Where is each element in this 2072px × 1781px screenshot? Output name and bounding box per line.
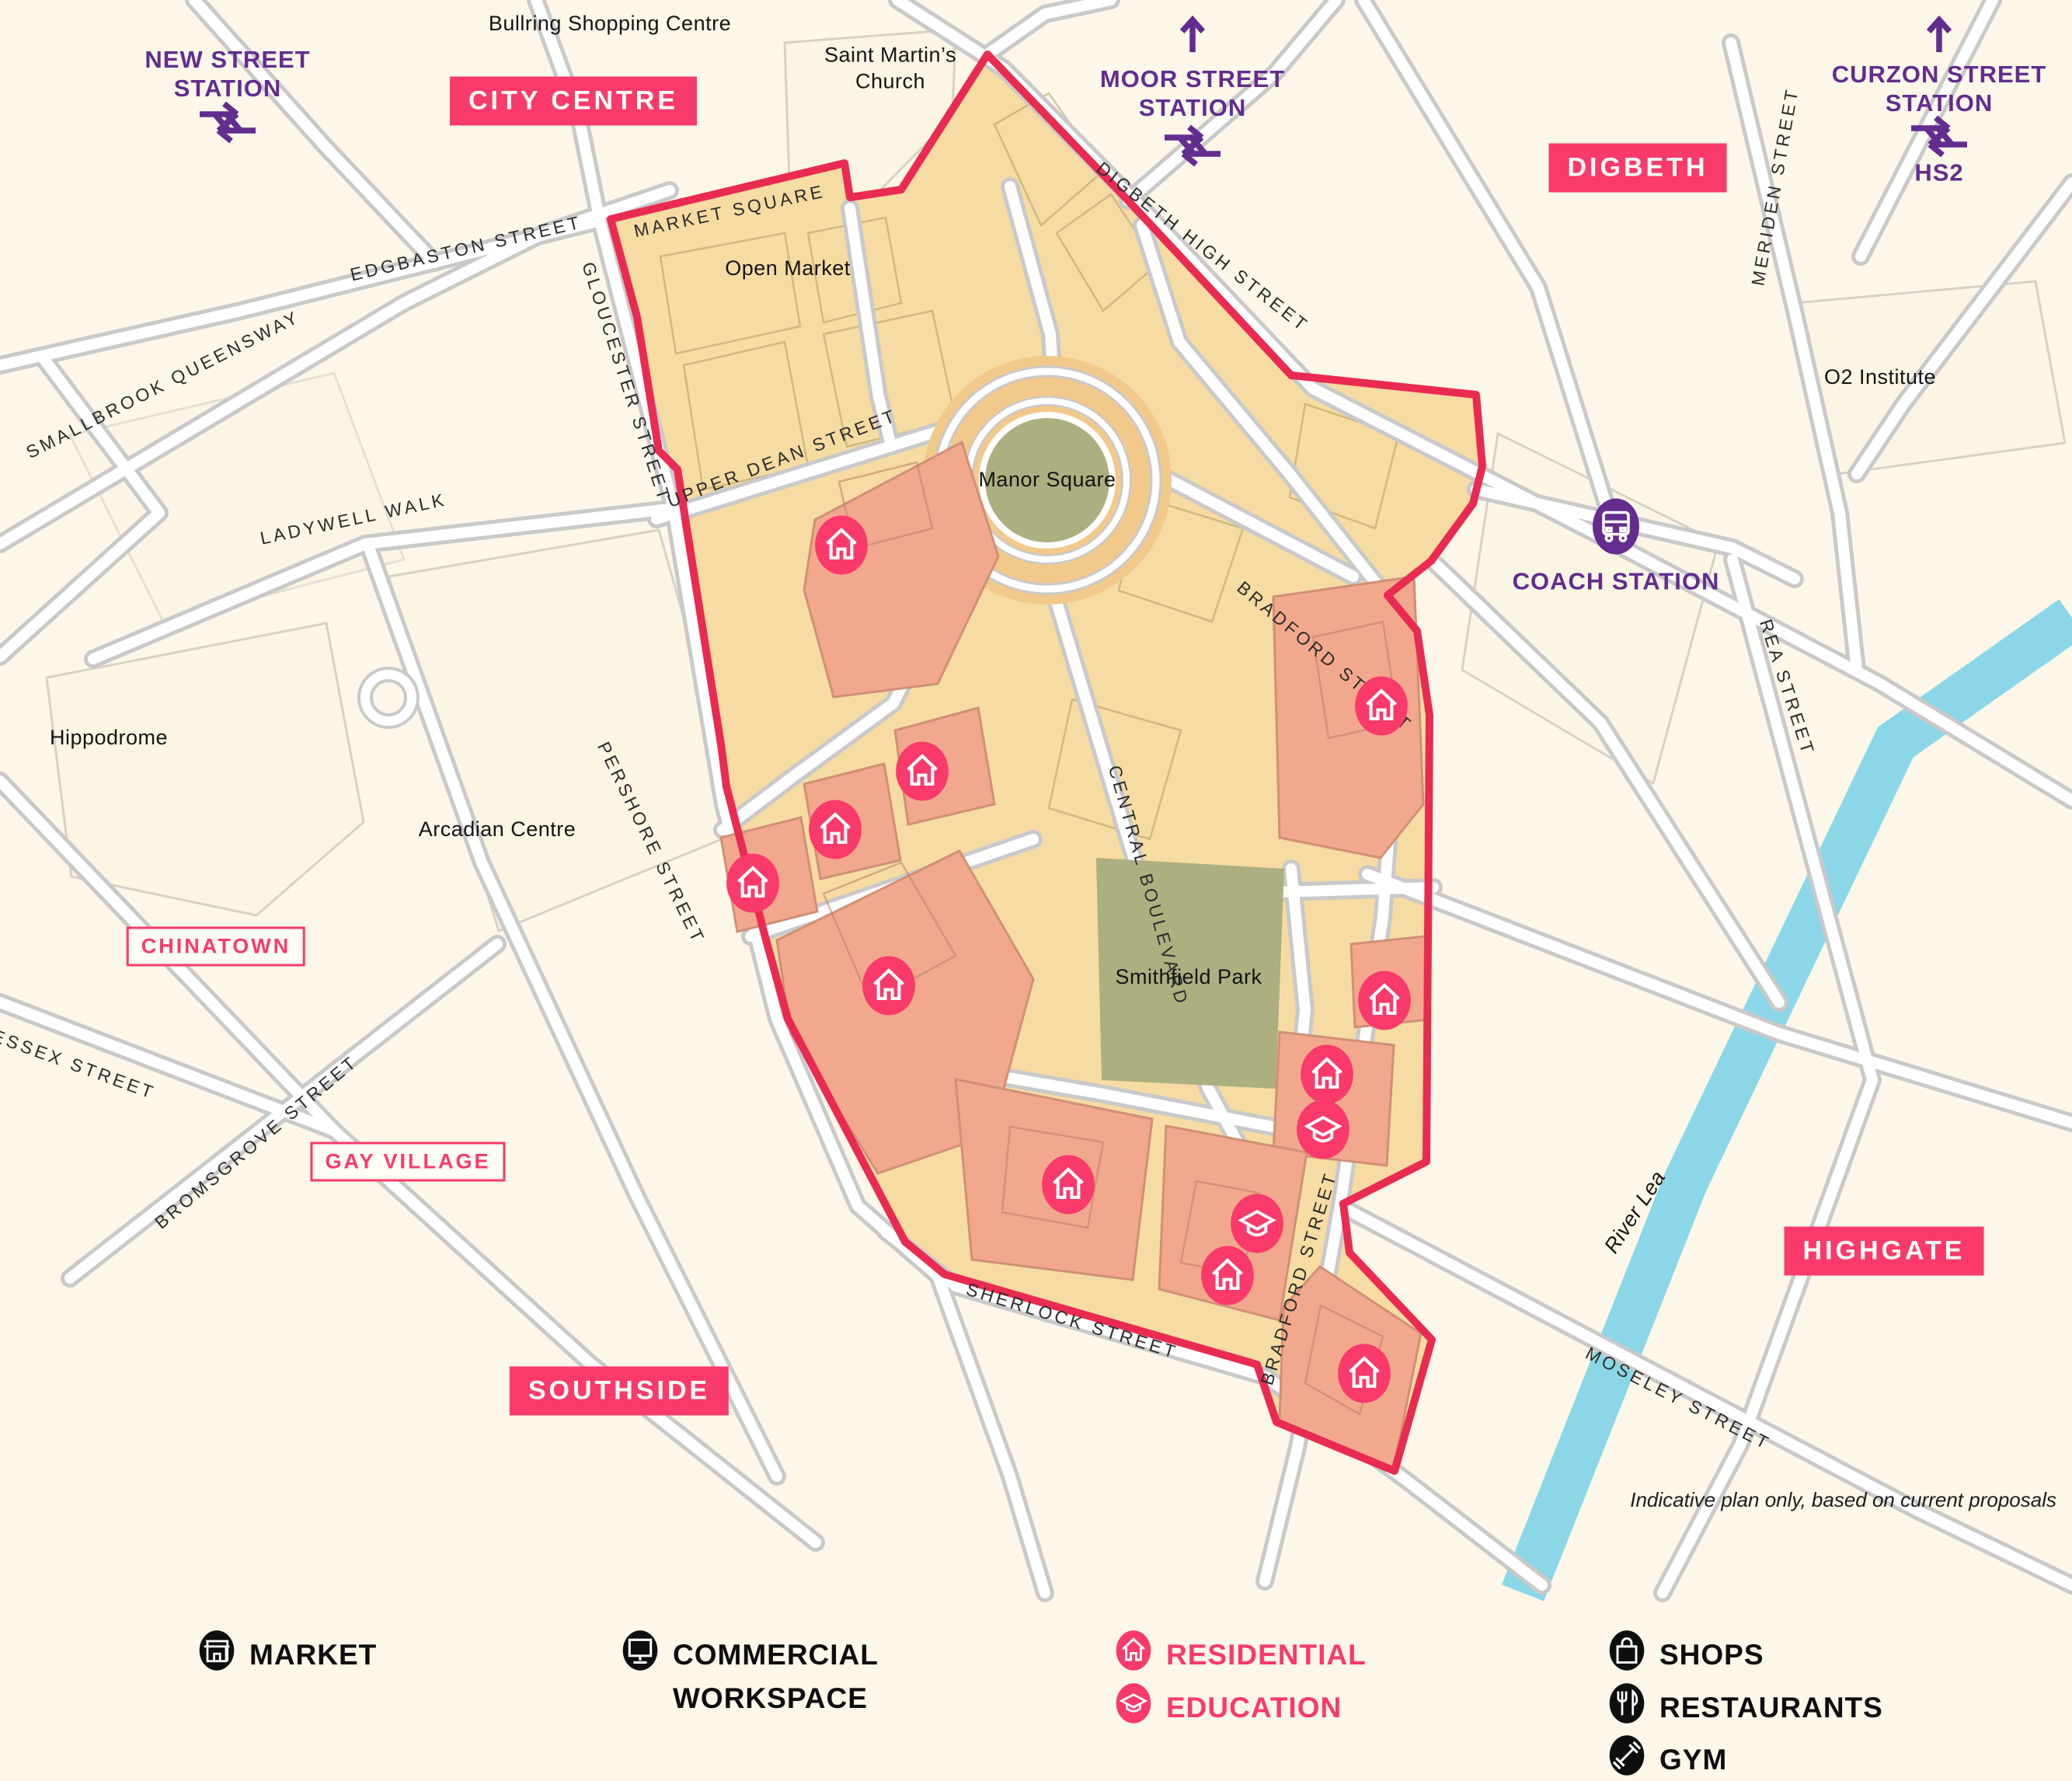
- legend-label: COMMERCIAL WORKSPACE: [673, 1629, 879, 1720]
- legend-item-residential: RESIDENTIAL: [1115, 1629, 1367, 1677]
- restaurants-icon: [1608, 1682, 1645, 1729]
- gym-icon: [1608, 1734, 1645, 1781]
- legend-item-gym: GYM: [1608, 1734, 1883, 1781]
- legend-item-commercial-workspace: COMMERCIAL WORKSPACE: [622, 1629, 879, 1720]
- shops-icon: [1608, 1629, 1645, 1676]
- legend-label: RESIDENTIAL: [1166, 1629, 1367, 1677]
- legend-item-market: MARKET: [198, 1629, 377, 1677]
- legend-label: GYM: [1659, 1734, 1727, 1781]
- legend-item-restaurants: RESTAURANTS: [1608, 1682, 1883, 1730]
- legend-label-line: COMMERCIAL: [673, 1633, 879, 1677]
- commercial-workspace-icon: [622, 1629, 659, 1676]
- legend-item-education: EDUCATION: [1115, 1682, 1367, 1730]
- education-icon: [1115, 1682, 1152, 1729]
- legend-item-shops: SHOPS: [1608, 1629, 1883, 1677]
- smithfield-masterplan-map: NEW STREET STATION MOOR STREET STATION C…: [0, 0, 2072, 1781]
- legend-label-line: WORKSPACE: [673, 1677, 879, 1720]
- legend-label: SHOPS: [1659, 1629, 1764, 1677]
- legend: MARKET COMMERCIAL WORKSPACE RESIDENTIAL: [0, 0, 2072, 1781]
- legend-label: RESTAURANTS: [1659, 1682, 1883, 1730]
- legend-label: EDUCATION: [1166, 1682, 1342, 1730]
- legend-label: MARKET: [249, 1629, 377, 1677]
- residential-icon: [1115, 1629, 1152, 1676]
- market-icon: [198, 1629, 235, 1676]
